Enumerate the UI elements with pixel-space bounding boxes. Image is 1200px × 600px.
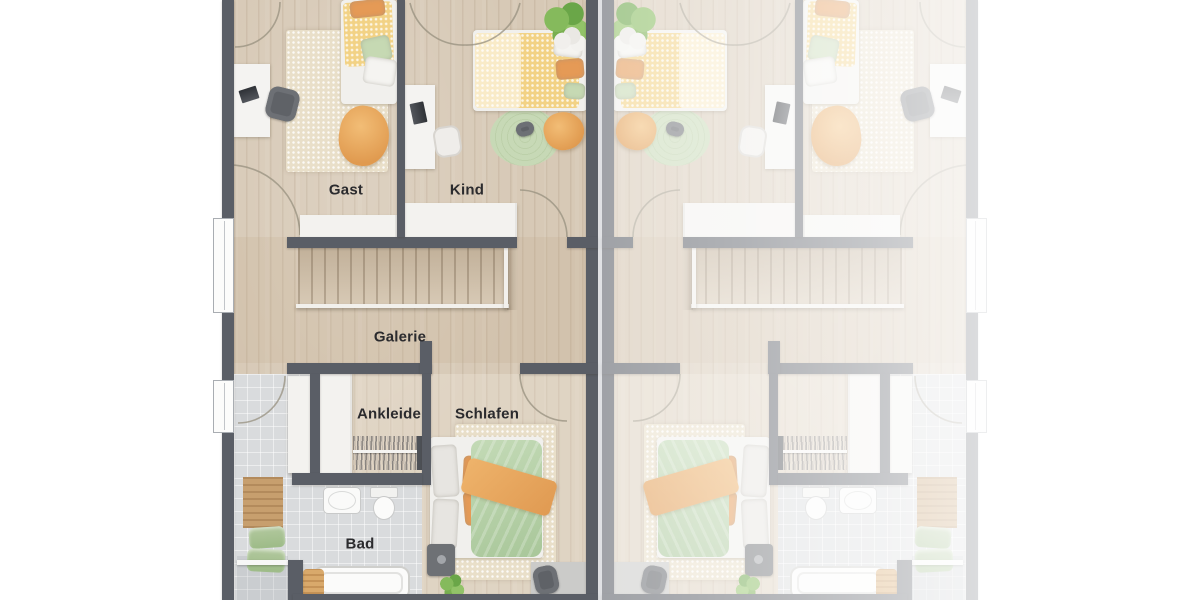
- exterior-wall-bottom: [602, 594, 907, 600]
- hall-wall: [683, 237, 913, 248]
- wall-pillar: [420, 341, 432, 374]
- galerie-wall: [520, 363, 598, 374]
- closet-bedroom-wall: [422, 374, 431, 485]
- room-divider-wall: [397, 0, 405, 237]
- room-label-schlafen: Schlafen: [455, 406, 519, 423]
- window: [213, 218, 234, 313]
- unit-right-mirrored: [600, 0, 987, 600]
- door-swing-arcs: [213, 0, 600, 600]
- wall-pillar: [768, 341, 780, 374]
- hall-wall: [287, 237, 517, 248]
- closet-bedroom-wall: [769, 374, 778, 485]
- hall-wall: [567, 237, 598, 248]
- room-label-gast: Gast: [329, 182, 363, 199]
- party-wall: [586, 0, 598, 600]
- bath-closet-wall: [880, 374, 890, 473]
- window: [966, 380, 987, 433]
- window: [213, 380, 234, 433]
- sink-wall: [778, 473, 908, 485]
- kids-closet: [683, 203, 795, 237]
- galerie-wall: [602, 363, 680, 374]
- door-swing-arcs: [600, 0, 987, 600]
- window: [966, 218, 987, 313]
- kids-closet: [405, 203, 517, 237]
- guest-closet: [300, 215, 397, 237]
- room-label-galerie: Galerie: [374, 329, 426, 346]
- unit-left: Gast Kind Galerie Ankleide Schlafen Bad: [213, 0, 600, 600]
- galerie-wall: [768, 363, 913, 374]
- floorplan-canvas: Gast Kind Galerie Ankleide Schlafen Bad: [0, 0, 1200, 600]
- party-wall: [602, 0, 614, 600]
- guest-closet: [803, 215, 900, 237]
- hall-wall: [602, 237, 633, 248]
- party-wall-joint: [598, 0, 600, 600]
- room-divider-wall: [795, 0, 803, 237]
- room-label-bad: Bad: [346, 536, 375, 553]
- bath-closet-wall: [310, 374, 320, 473]
- galerie-wall: [287, 363, 432, 374]
- exterior-wall-bottom: [293, 594, 598, 600]
- room-label-ankleide: Ankleide: [357, 406, 421, 423]
- room-label-kind: Kind: [450, 182, 484, 199]
- sink-wall: [292, 473, 422, 485]
- party-wall-joint: [600, 0, 602, 600]
